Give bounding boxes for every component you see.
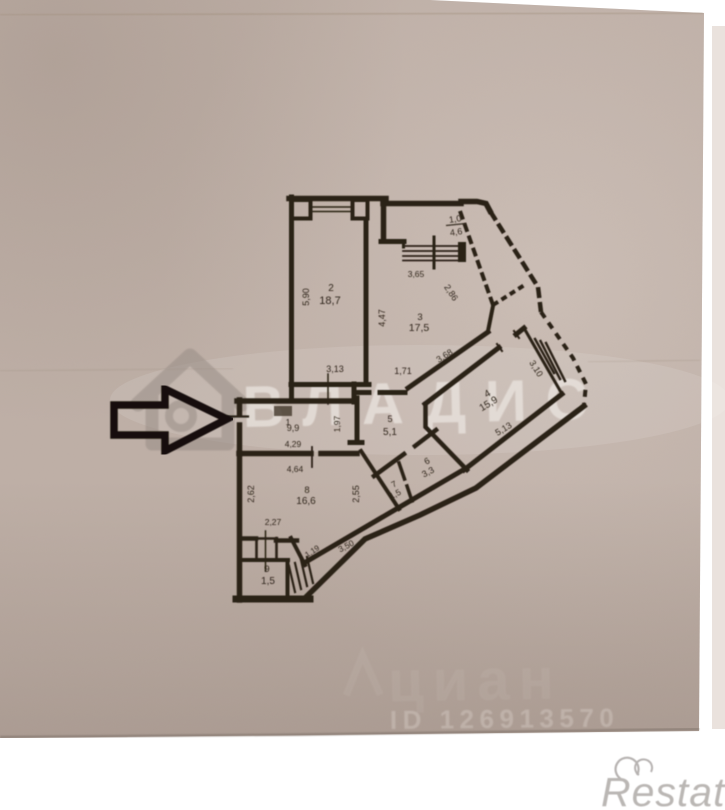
- svg-text:17,5: 17,5: [409, 322, 430, 334]
- svg-text:1,5: 1,5: [261, 576, 275, 587]
- svg-text:1,71: 1,71: [394, 366, 412, 376]
- svg-text:Restate: Restate: [601, 769, 725, 810]
- svg-text:9: 9: [264, 564, 269, 575]
- svg-text:4,6: 4,6: [449, 226, 463, 238]
- svg-text:2,27: 2,27: [265, 517, 282, 527]
- svg-text:1,97: 1,97: [332, 415, 342, 432]
- svg-text:4,29: 4,29: [285, 439, 302, 449]
- svg-text:5: 5: [387, 414, 392, 424]
- svg-text:ID 126913570: ID 126913570: [390, 703, 620, 735]
- svg-text:3,13: 3,13: [326, 364, 344, 374]
- svg-text:16,6: 16,6: [296, 496, 316, 507]
- svg-text:2,55: 2,55: [351, 485, 361, 503]
- svg-text:5,1: 5,1: [383, 427, 397, 438]
- svg-text:9,9: 9,9: [287, 423, 300, 433]
- svg-text:18,7: 18,7: [319, 295, 340, 307]
- svg-text:2: 2: [328, 283, 334, 294]
- svg-text:8: 8: [304, 485, 309, 496]
- svg-text:3,65: 3,65: [408, 269, 425, 279]
- svg-text:2,62: 2,62: [246, 485, 256, 503]
- svg-text:5,90: 5,90: [301, 288, 311, 306]
- svg-text:1,0: 1,0: [448, 213, 462, 225]
- svg-text:4,64: 4,64: [287, 464, 304, 474]
- svg-text:4,47: 4,47: [377, 309, 387, 327]
